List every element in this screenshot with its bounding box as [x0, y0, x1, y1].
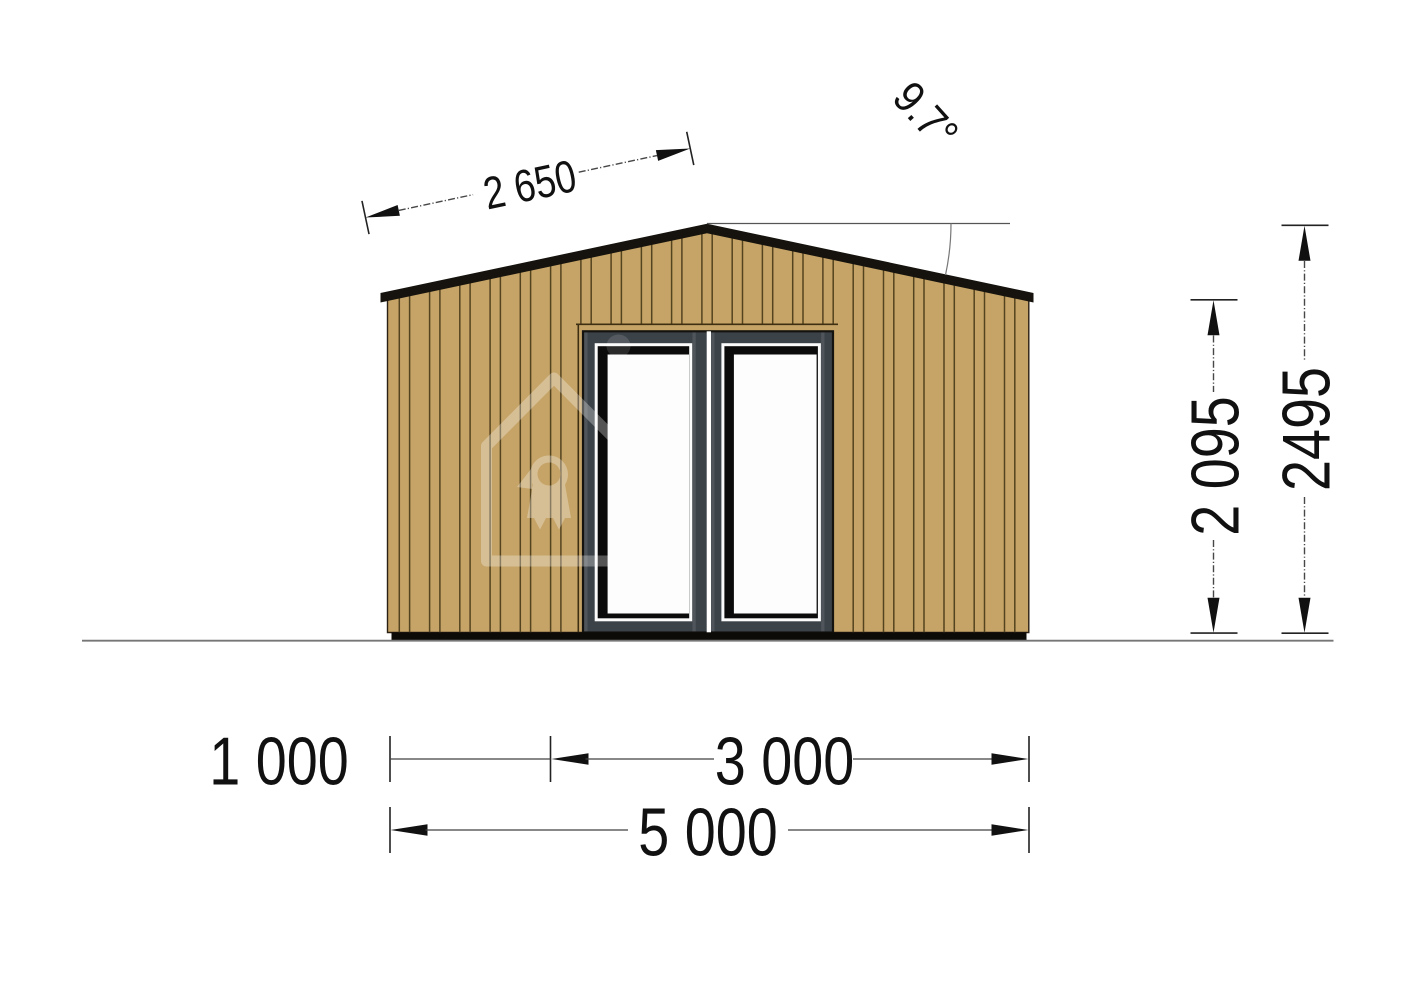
svg-text:2 095: 2 095: [1178, 396, 1253, 536]
svg-text:2495: 2495: [1269, 367, 1344, 491]
svg-text:5 000: 5 000: [638, 795, 778, 870]
svg-text:1 000: 1 000: [209, 724, 349, 799]
svg-text:3 000: 3 000: [715, 724, 855, 799]
